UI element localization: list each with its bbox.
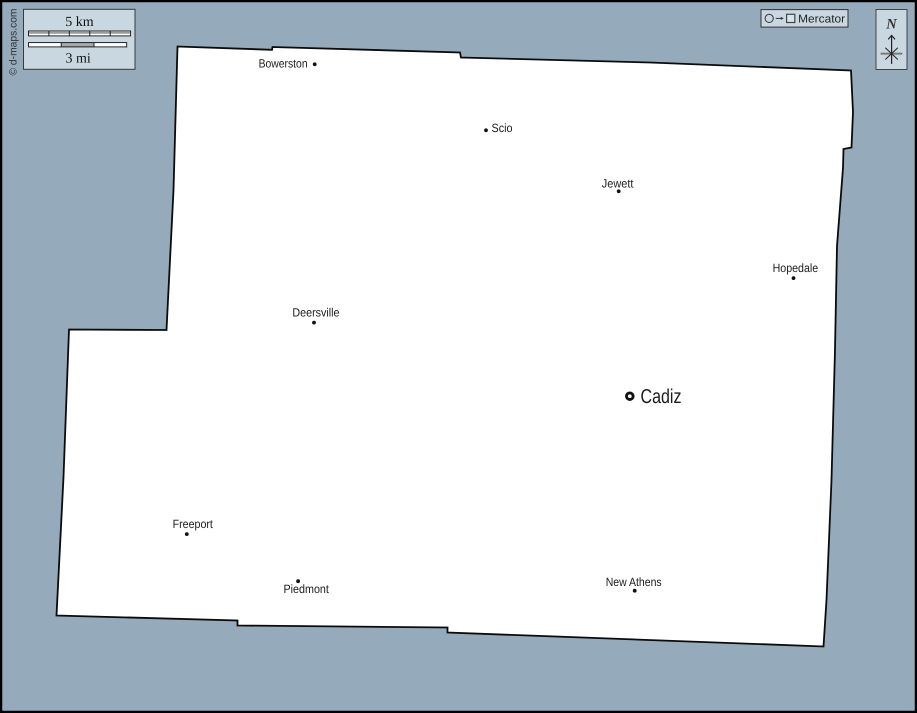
svg-text:Deersville: Deersville <box>292 306 339 320</box>
svg-text:New Athens: New Athens <box>606 575 662 589</box>
svg-text:Jewett: Jewett <box>602 176 634 190</box>
svg-text:Cadiz: Cadiz <box>641 386 682 408</box>
svg-text:Mercator: Mercator <box>798 13 845 25</box>
svg-text:Freeport: Freeport <box>173 517 214 531</box>
svg-text:3 mi: 3 mi <box>66 52 91 67</box>
svg-text:© d-maps.com: © d-maps.com <box>8 8 20 75</box>
svg-text:Hopedale: Hopedale <box>773 261 819 275</box>
svg-text:Bowerston: Bowerston <box>259 57 308 71</box>
svg-text:Scio: Scio <box>492 121 513 135</box>
svg-text:N: N <box>885 17 897 33</box>
svg-text:Piedmont: Piedmont <box>284 582 330 596</box>
svg-text:5 km: 5 km <box>65 15 94 30</box>
